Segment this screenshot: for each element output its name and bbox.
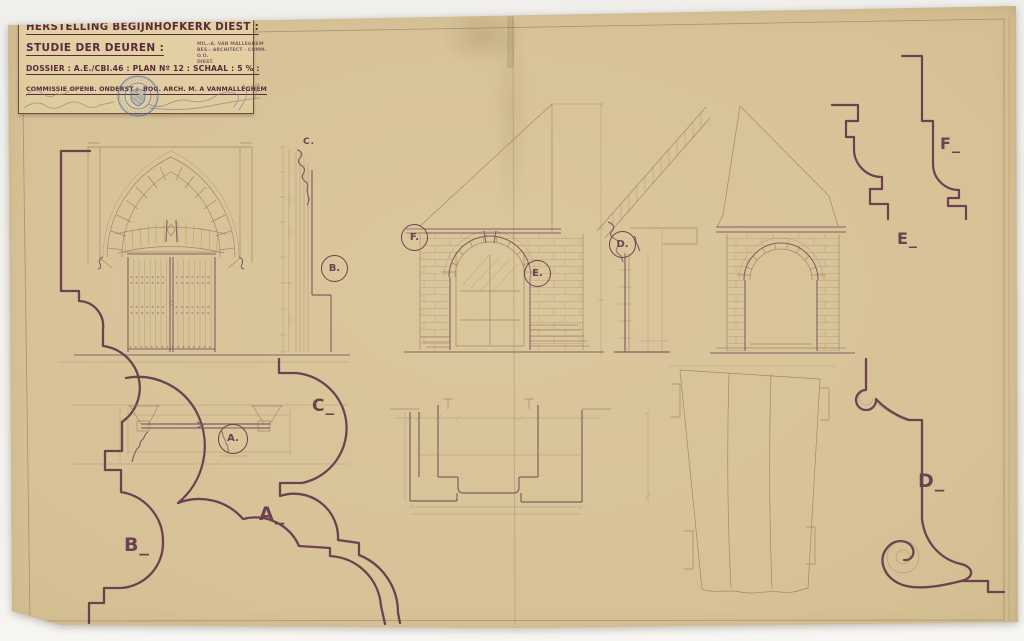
jamb-section-strip [286, 150, 331, 352]
label-profile-a: A_ [259, 505, 285, 524]
label-profile-f: F_ [940, 136, 961, 152]
label-profile-c: C_ [312, 398, 335, 415]
signatures [18, 78, 278, 128]
label-circle-a: A. [218, 424, 248, 454]
gothic-door-elevation [58, 143, 350, 362]
label-circle-f: F. [401, 224, 428, 251]
architect-office-stamp: MIL.-A. VAN MALLEGHEM BES.- ARCHITECT - … [197, 42, 267, 66]
door-plan-section [390, 399, 651, 514]
label-profile-d: D_ [918, 472, 945, 491]
label-circle-b: B. [321, 255, 348, 282]
label-profile-e: E_ [897, 231, 918, 247]
porch-front-elevation [404, 104, 604, 355]
label-circle-e: E. [524, 260, 551, 287]
threshold-section-detail [72, 405, 348, 464]
office-stamp-line-2: BES.- ARCHITECT - COMM. O.O. [197, 48, 267, 60]
porch-corner-view [710, 106, 855, 353]
label-profile-b: B_ [124, 536, 150, 555]
screenshot-root: { "palette": { "background": "#f1f0ed", … [0, 0, 1024, 641]
paper-sheet: HERSTELLING BEGIJNHOFKERK DIEST : STUDIE… [0, 0, 1024, 641]
title-line-subject: STUDIE DER DEUREN : [26, 42, 164, 56]
label-circle-d: D. [609, 231, 636, 258]
label-section-c: C. [303, 138, 315, 147]
moulding-profiles-a-b-c [61, 151, 400, 624]
office-stamp-line-3: DIEST. [197, 60, 267, 66]
eaves-section-detail [597, 107, 710, 352]
paper-sheet-wrapper: HERSTELLING BEGIJNHOFKERK DIEST : STUDIE… [0, 0, 1024, 641]
console-front-view [668, 366, 836, 593]
title-line-project: HERSTELLING BEGIJNHOFKERK DIEST : [26, 21, 259, 35]
